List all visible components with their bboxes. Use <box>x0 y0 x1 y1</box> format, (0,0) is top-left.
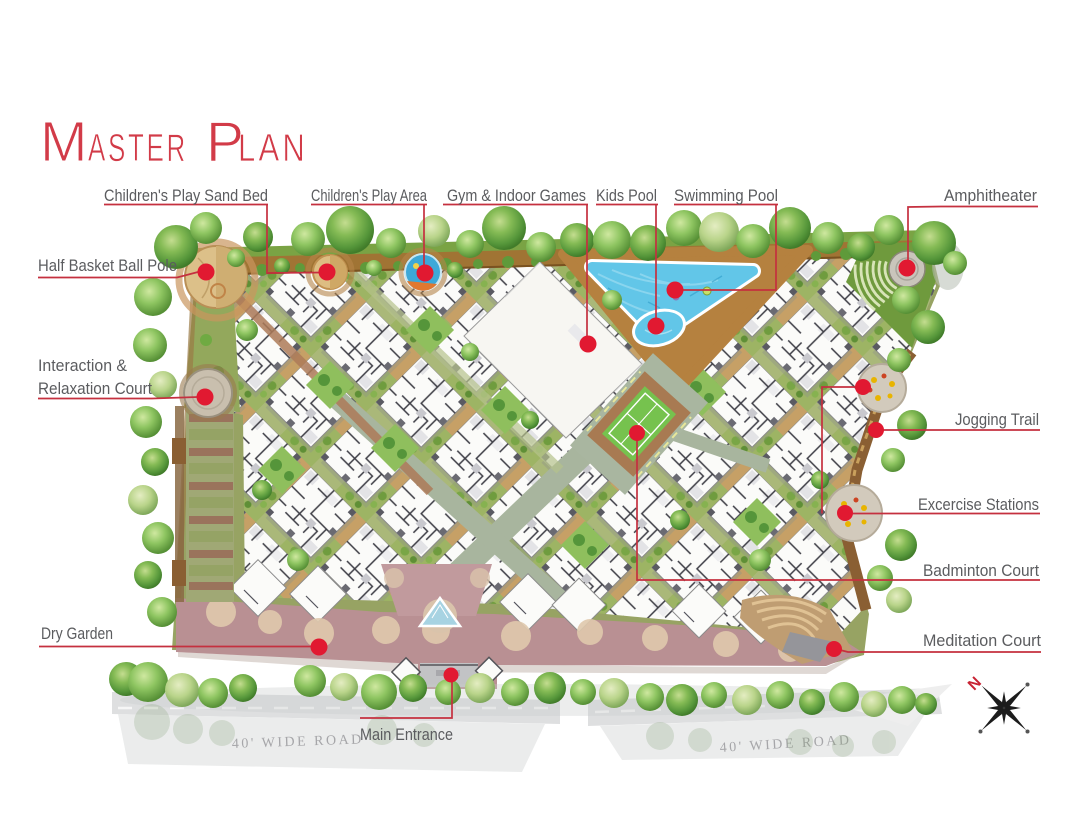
svg-text:Meditation Court: Meditation Court <box>923 631 1041 650</box>
svg-text:Jogging Trail: Jogging Trail <box>955 410 1039 429</box>
svg-text:Badminton Court: Badminton Court <box>923 561 1039 580</box>
svg-text:Amphitheater: Amphitheater <box>944 186 1037 205</box>
svg-text:Dry Garden: Dry Garden <box>41 624 113 643</box>
svg-text:LAN: LAN <box>238 127 308 170</box>
svg-text:Kids Pool: Kids Pool <box>596 186 657 205</box>
svg-text:Relaxation Court: Relaxation Court <box>38 379 152 398</box>
svg-text:Interaction &: Interaction & <box>38 356 128 375</box>
svg-text:M: M <box>40 110 89 174</box>
svg-text:Children's Play Area: Children's Play Area <box>311 186 427 205</box>
svg-text:Excercise Stations: Excercise Stations <box>918 495 1039 514</box>
svg-text:Main Entrance: Main Entrance <box>360 725 453 744</box>
svg-text:ASTER: ASTER <box>88 127 188 170</box>
svg-text:Swimming Pool: Swimming Pool <box>674 186 778 205</box>
svg-text:Children's Play Sand Bed: Children's Play Sand Bed <box>104 186 268 205</box>
svg-text:Half Basket Ball Pole: Half Basket Ball Pole <box>38 256 177 275</box>
svg-text:Gym & Indoor Games: Gym & Indoor Games <box>447 186 586 205</box>
